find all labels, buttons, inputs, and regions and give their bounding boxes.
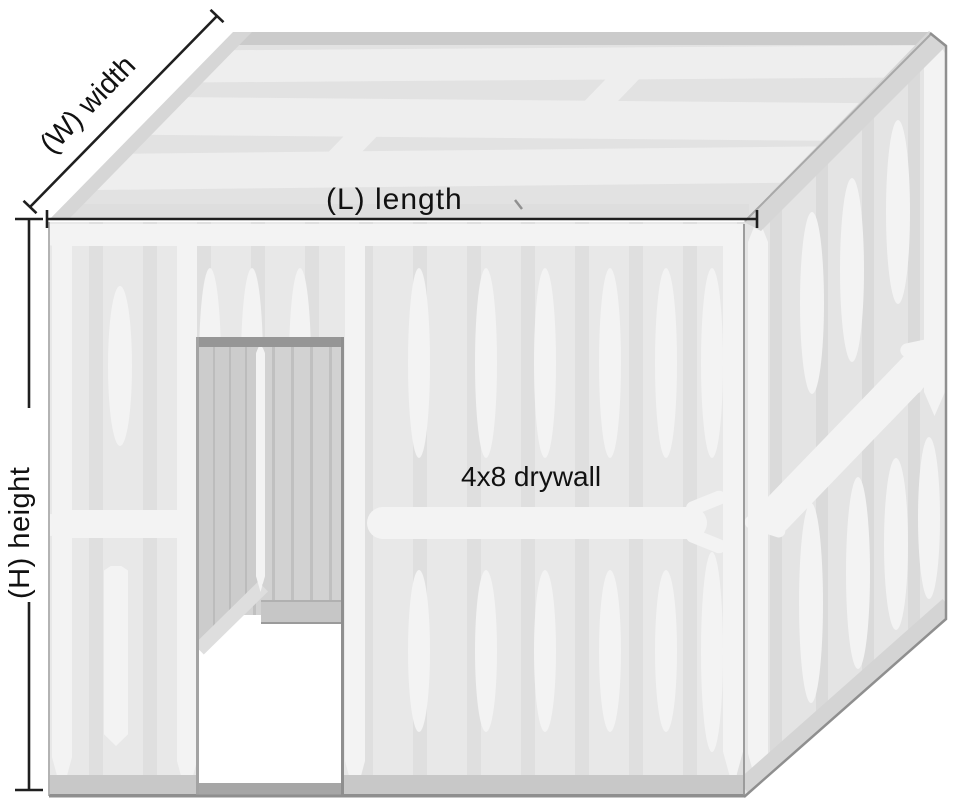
joint-oval <box>599 570 621 732</box>
joint-oval <box>108 286 132 446</box>
joint-oval <box>475 268 497 458</box>
roof-back-edge <box>235 32 935 45</box>
joint-oval <box>534 268 556 458</box>
joint-oval <box>701 268 723 458</box>
joint-oval <box>655 570 677 732</box>
joint-oval <box>701 552 723 752</box>
joint-oval <box>408 570 430 732</box>
joint-seam-lower <box>104 566 128 746</box>
front-wall <box>49 222 745 797</box>
tape-flare <box>684 527 728 556</box>
length-label: (L) length <box>326 184 463 216</box>
joint-oval <box>846 477 870 669</box>
joint-oval <box>884 458 908 630</box>
joint-oval <box>800 212 824 394</box>
drywall-room-diagram: (W) width (L) length (H) height 4x8 dryw… <box>0 0 966 809</box>
interior-floor <box>199 615 341 783</box>
joint-oval <box>534 570 556 732</box>
drywall-label: 4x8 drywall <box>461 461 601 493</box>
joint-oval <box>475 570 497 732</box>
door-opening <box>196 337 344 797</box>
drywall-seam <box>52 228 72 794</box>
joint-oval <box>840 178 864 362</box>
roof-tape-band <box>60 96 960 142</box>
joint-oval <box>799 503 823 703</box>
wall-top-tape-band <box>49 224 745 246</box>
joint-oval <box>655 268 677 458</box>
horizontal-tape-band <box>70 510 177 538</box>
door-threshold <box>199 783 341 797</box>
height-label: (H) height <box>4 467 36 599</box>
joint-oval <box>599 268 621 458</box>
joint-oval <box>886 120 910 304</box>
wall-bottom-edge <box>49 794 745 797</box>
drywall-seam <box>345 228 365 797</box>
side-baseboard <box>737 599 955 796</box>
interior-back-baseboard <box>261 600 341 624</box>
interior-corner-seam <box>256 347 265 592</box>
drywall-seam <box>723 228 743 788</box>
joint-oval <box>408 268 430 458</box>
tape-flare <box>684 489 728 518</box>
baseboard <box>49 775 745 794</box>
door-header <box>199 337 341 347</box>
drywall-seam <box>177 228 197 797</box>
joint-oval <box>918 437 940 599</box>
horizontal-tape-band <box>367 507 707 539</box>
roof-tape-band <box>150 45 950 83</box>
